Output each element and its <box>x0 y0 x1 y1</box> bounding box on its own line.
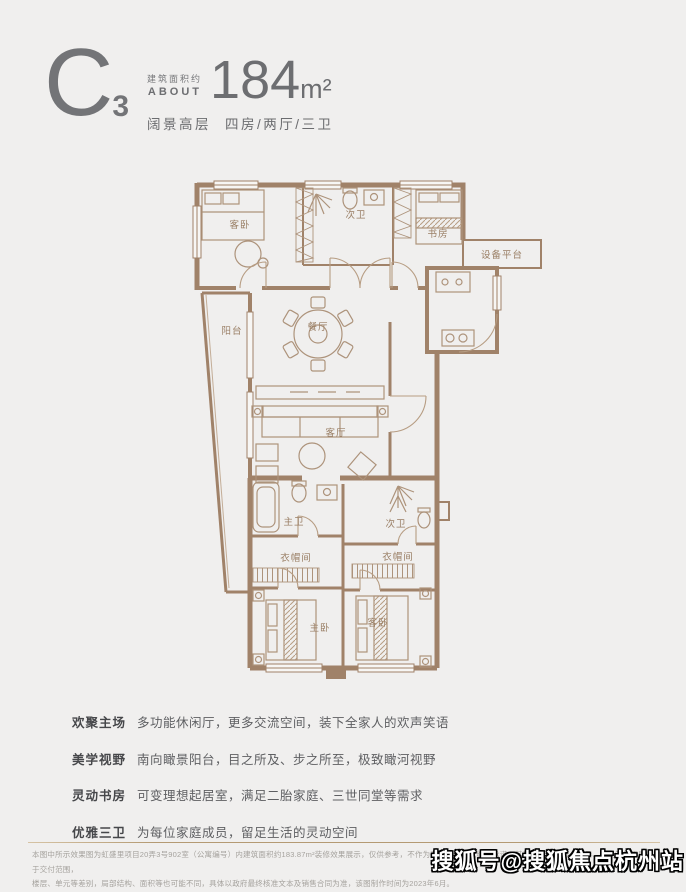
room-label-equipment-platform: 设备平台 <box>481 249 523 261</box>
feature-title: 美学视野 <box>72 749 126 768</box>
feature-row: 灵动书房 可变理想起居室，满足二胎家庭、三世同堂等需求 <box>72 785 449 804</box>
feature-list: 欢聚主场 多功能休闲厅，更多交流空间，装下全家人的欢声笑语 美学视野 南向瞰景阳… <box>72 712 449 858</box>
room-label-guest-bedroom-lower: 客卧 <box>367 617 388 629</box>
feature-row: 美学视野 南向瞰景阳台，目之所及、步之所至，极致瞰河视野 <box>72 749 449 768</box>
room-label-bath-lower: 次卫 <box>385 518 406 530</box>
feature-title: 优雅三卫 <box>72 822 126 841</box>
room-label-closet-right: 衣帽间 <box>382 551 414 563</box>
feature-desc: 南向瞰景阳台，目之所及、步之所至，极致瞰河视野 <box>137 749 436 768</box>
feature-desc: 可变理想起居室，满足二胎家庭、三世同堂等需求 <box>137 785 423 804</box>
footer-divider <box>28 842 660 843</box>
doors <box>240 258 497 590</box>
feature-title: 灵动书房 <box>72 785 126 804</box>
room-label-guest-bedroom-top: 客卧 <box>229 219 250 231</box>
feature-row: 欢聚主场 多功能休闲厅，更多交流空间，装下全家人的欢声笑语 <box>72 712 449 731</box>
feature-title: 欢聚主场 <box>72 712 126 731</box>
room-label-dining: 餐厅 <box>307 321 328 333</box>
disclaimer-line-2: 楼层、单元等差别，局部结构、面积等也可能不同，具体以政府最终核准文本及销售合同为… <box>32 877 652 892</box>
feature-desc: 多功能休闲厅，更多交流空间，装下全家人的欢声笑语 <box>137 712 449 731</box>
room-label-master-bedroom: 主卧 <box>309 622 330 634</box>
room-label-master-bath: 主卫 <box>283 516 304 528</box>
room-label-bath-top: 次卫 <box>345 209 366 221</box>
feature-row: 优雅三卫 为每位家庭成员，留足生活的灵动空间 <box>72 822 449 841</box>
room-label-study: 书房 <box>427 228 448 240</box>
room-label-balcony: 阳台 <box>221 325 242 337</box>
feature-desc: 为每位家庭成员，留足生活的灵动空间 <box>137 822 358 841</box>
windows <box>193 181 501 672</box>
sohu-watermark: 搜狐号@搜狐焦点杭州站 <box>432 844 684 876</box>
room-label-closet-left: 衣帽间 <box>280 552 312 564</box>
floorplan-page: C 3 建筑面积约 ABOUT 184m² 阔景高层 四房/两厅/三卫 <box>0 0 686 880</box>
room-label-living: 客厅 <box>325 427 346 439</box>
